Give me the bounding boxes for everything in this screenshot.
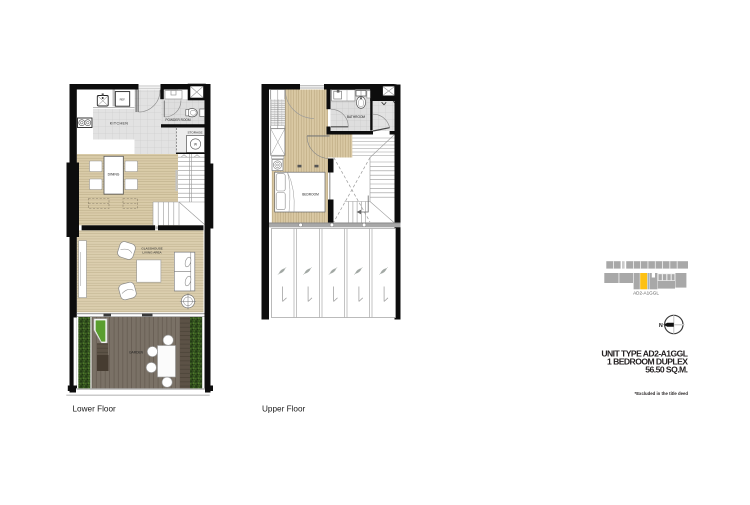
svg-text:STORAGE: STORAGE — [187, 130, 202, 134]
svg-text:AD2-A1GGL: AD2-A1GGL — [633, 291, 659, 296]
svg-text:BATHROOM: BATHROOM — [347, 115, 366, 119]
svg-text:LIVING AREA: LIVING AREA — [142, 251, 162, 255]
svg-text:Upper Floor: Upper Floor — [262, 405, 306, 414]
svg-text:GARDEN: GARDEN — [129, 351, 144, 355]
svg-text:Lower Floor: Lower Floor — [73, 405, 117, 414]
svg-text:*Excluded in the title deed: *Excluded in the title deed — [635, 391, 689, 396]
svg-text:N: N — [659, 323, 663, 329]
svg-text:REF.: REF. — [120, 97, 126, 101]
svg-text:POWDER ROOM: POWDER ROOM — [165, 118, 190, 122]
svg-text:BEDROOM: BEDROOM — [302, 192, 319, 196]
svg-text:DINING: DINING — [108, 173, 120, 177]
svg-text:KITCHEN: KITCHEN — [110, 122, 129, 126]
svg-text:56.50 SQ.M.: 56.50 SQ.M. — [645, 365, 687, 375]
